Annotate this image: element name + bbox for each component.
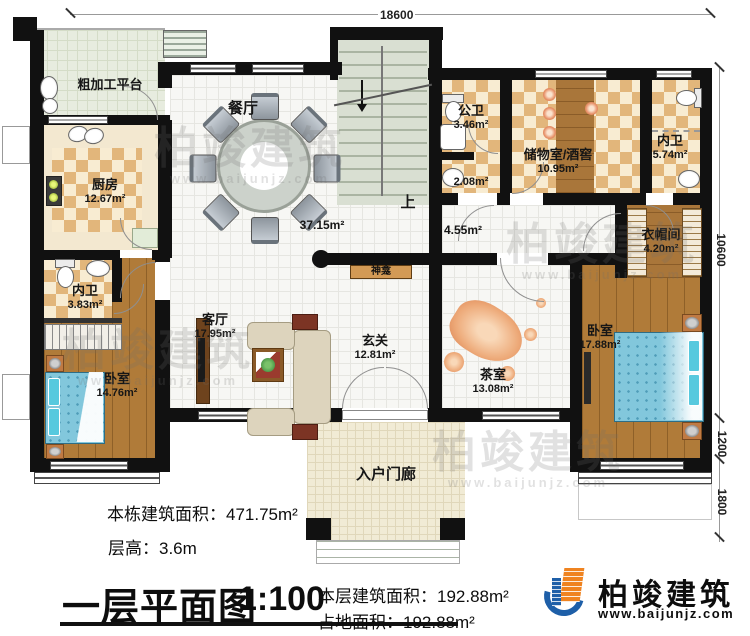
nightstand xyxy=(682,422,702,440)
wall-bathleft-bottom xyxy=(44,318,122,323)
bay-sill-right xyxy=(578,472,712,484)
window-storage-top xyxy=(535,70,607,78)
side-table xyxy=(292,424,318,440)
left-bay-2 xyxy=(2,374,30,420)
area-label-dining: 37.15m² xyxy=(282,219,362,233)
dining-table-top xyxy=(240,142,288,190)
bedroom-tv xyxy=(584,352,591,404)
sink-left xyxy=(86,260,110,277)
window-dining-1 xyxy=(190,64,236,73)
storage-wood-strip xyxy=(556,80,594,193)
nightstand xyxy=(682,314,702,332)
company-website: www.baijunjz.com xyxy=(598,606,734,621)
room-label-platform: 粗加工平台 xyxy=(55,78,165,93)
wall-bedroomleft-right-a xyxy=(155,255,170,262)
terrace-outline xyxy=(578,484,712,520)
platform-edge xyxy=(37,28,165,30)
wine-rack-dot xyxy=(585,102,598,115)
wall-tea-bedroom xyxy=(570,265,582,472)
wall-foyer-bottom-r xyxy=(428,408,466,422)
dining-chair xyxy=(190,155,217,183)
entry-door-leaves xyxy=(342,410,428,420)
floor-plan-canvas: 上 xyxy=(0,0,750,636)
dim-tick xyxy=(705,8,716,19)
wine-rack-dot xyxy=(543,126,556,139)
wall-kitchen-bottom-a xyxy=(30,250,120,260)
side-table xyxy=(292,314,318,330)
wine-rack-dot xyxy=(543,107,556,120)
area-label-hallway: 4.55m² xyxy=(428,224,498,238)
dim-top: 18600 xyxy=(378,8,415,22)
dim-tick xyxy=(65,8,76,19)
window-bedroomright xyxy=(600,461,684,470)
window-tea xyxy=(482,411,560,420)
stat-total-area: 本栋建筑面积：471.75m² xyxy=(107,500,298,525)
nightstand xyxy=(46,444,64,459)
tv xyxy=(198,338,205,382)
wine-rack-dot xyxy=(543,88,556,101)
stairs-up-label: 上 xyxy=(396,194,420,211)
wall-hall-bottom-a xyxy=(462,253,497,265)
porch-steps xyxy=(316,540,460,564)
tea-rug-dot xyxy=(524,328,537,341)
room-label-foyer: 玄关12.81m² xyxy=(320,334,430,362)
room-label-cloakroom: 衣帽间4.20m² xyxy=(606,228,716,256)
dim-right-total: 10600 xyxy=(714,219,728,281)
wall-rooms-bottom-c xyxy=(543,193,646,205)
nightstand xyxy=(46,355,64,372)
dim-right-porch: 1800 xyxy=(715,480,729,524)
room-label-bath-left: 内卫3.83m² xyxy=(30,284,140,312)
wall-rooms-bottom-b xyxy=(497,193,510,205)
platform-sink2 xyxy=(42,98,58,114)
logo-tower-blue xyxy=(552,578,561,606)
room-label-dining: 餐厅 xyxy=(188,100,298,117)
room-label-porch: 入户门廊 xyxy=(326,466,446,483)
plan-scale: 1:100 xyxy=(238,580,325,619)
wall-rooms-bottom-d xyxy=(673,193,712,205)
wall-kitchen-right-b xyxy=(158,120,172,258)
toilet-right xyxy=(676,90,697,106)
vent-window xyxy=(163,30,207,58)
stat-floor-area: 本层建筑面积：192.88m² xyxy=(318,582,509,607)
bay-sill-left xyxy=(34,472,160,484)
area-label-wash: 2.08m² xyxy=(436,176,506,189)
pillow xyxy=(48,408,60,436)
shrine-label: 神龛 xyxy=(350,266,412,278)
room-label-storage: 储物室/酒窖10.95m² xyxy=(493,148,623,176)
plant xyxy=(261,358,275,372)
shower-divider xyxy=(652,130,700,132)
wall-stairbump-left xyxy=(330,27,338,80)
window-dining-2 xyxy=(252,64,304,73)
dining-chair xyxy=(314,155,341,183)
pillow xyxy=(48,378,60,406)
porch-column-left xyxy=(306,518,331,540)
window-kitchen-top xyxy=(48,116,108,124)
sofa-single-bottom xyxy=(247,408,295,436)
room-label-public-bath: 公卫3.46m² xyxy=(428,104,514,132)
stair-arrowhead xyxy=(357,104,367,112)
room-label-bath-right: 内卫5.74m² xyxy=(615,134,725,162)
wall-shrine-cap xyxy=(312,250,330,268)
room-label-bedroom-right: 卧室17.88m² xyxy=(545,324,655,352)
wall-publicbath-divider xyxy=(440,152,474,160)
room-label-tea-room: 茶室13.08m² xyxy=(438,368,548,396)
wardrobe-left xyxy=(44,324,122,350)
sink-right xyxy=(678,170,700,188)
stair-rail xyxy=(381,46,383,196)
room-label-bedroom-left: 卧室14.76m² xyxy=(62,372,172,400)
stair-treads xyxy=(339,46,427,196)
company-logo-icon xyxy=(544,566,594,624)
pillow xyxy=(688,340,700,372)
pillow xyxy=(688,374,700,406)
porch-column-right xyxy=(440,518,465,540)
room-label-living: 客厅17.95m² xyxy=(160,313,270,341)
window-bedroomleft xyxy=(50,461,128,470)
window-bathright-top xyxy=(656,70,692,78)
wall-dining-top xyxy=(158,62,342,75)
wall-rooms-bottom-a xyxy=(429,193,458,205)
dining-chair xyxy=(251,217,279,244)
wall-stairbump-top xyxy=(330,27,443,40)
wall-shrine xyxy=(322,253,462,265)
stat-floor-height: 层高：3.6m xyxy=(108,534,197,559)
stat-land-area: 占地面积：192.88m² xyxy=(318,608,475,633)
left-bay-1 xyxy=(2,126,30,164)
room-label-kitchen: 厨房12.67m² xyxy=(50,178,160,206)
